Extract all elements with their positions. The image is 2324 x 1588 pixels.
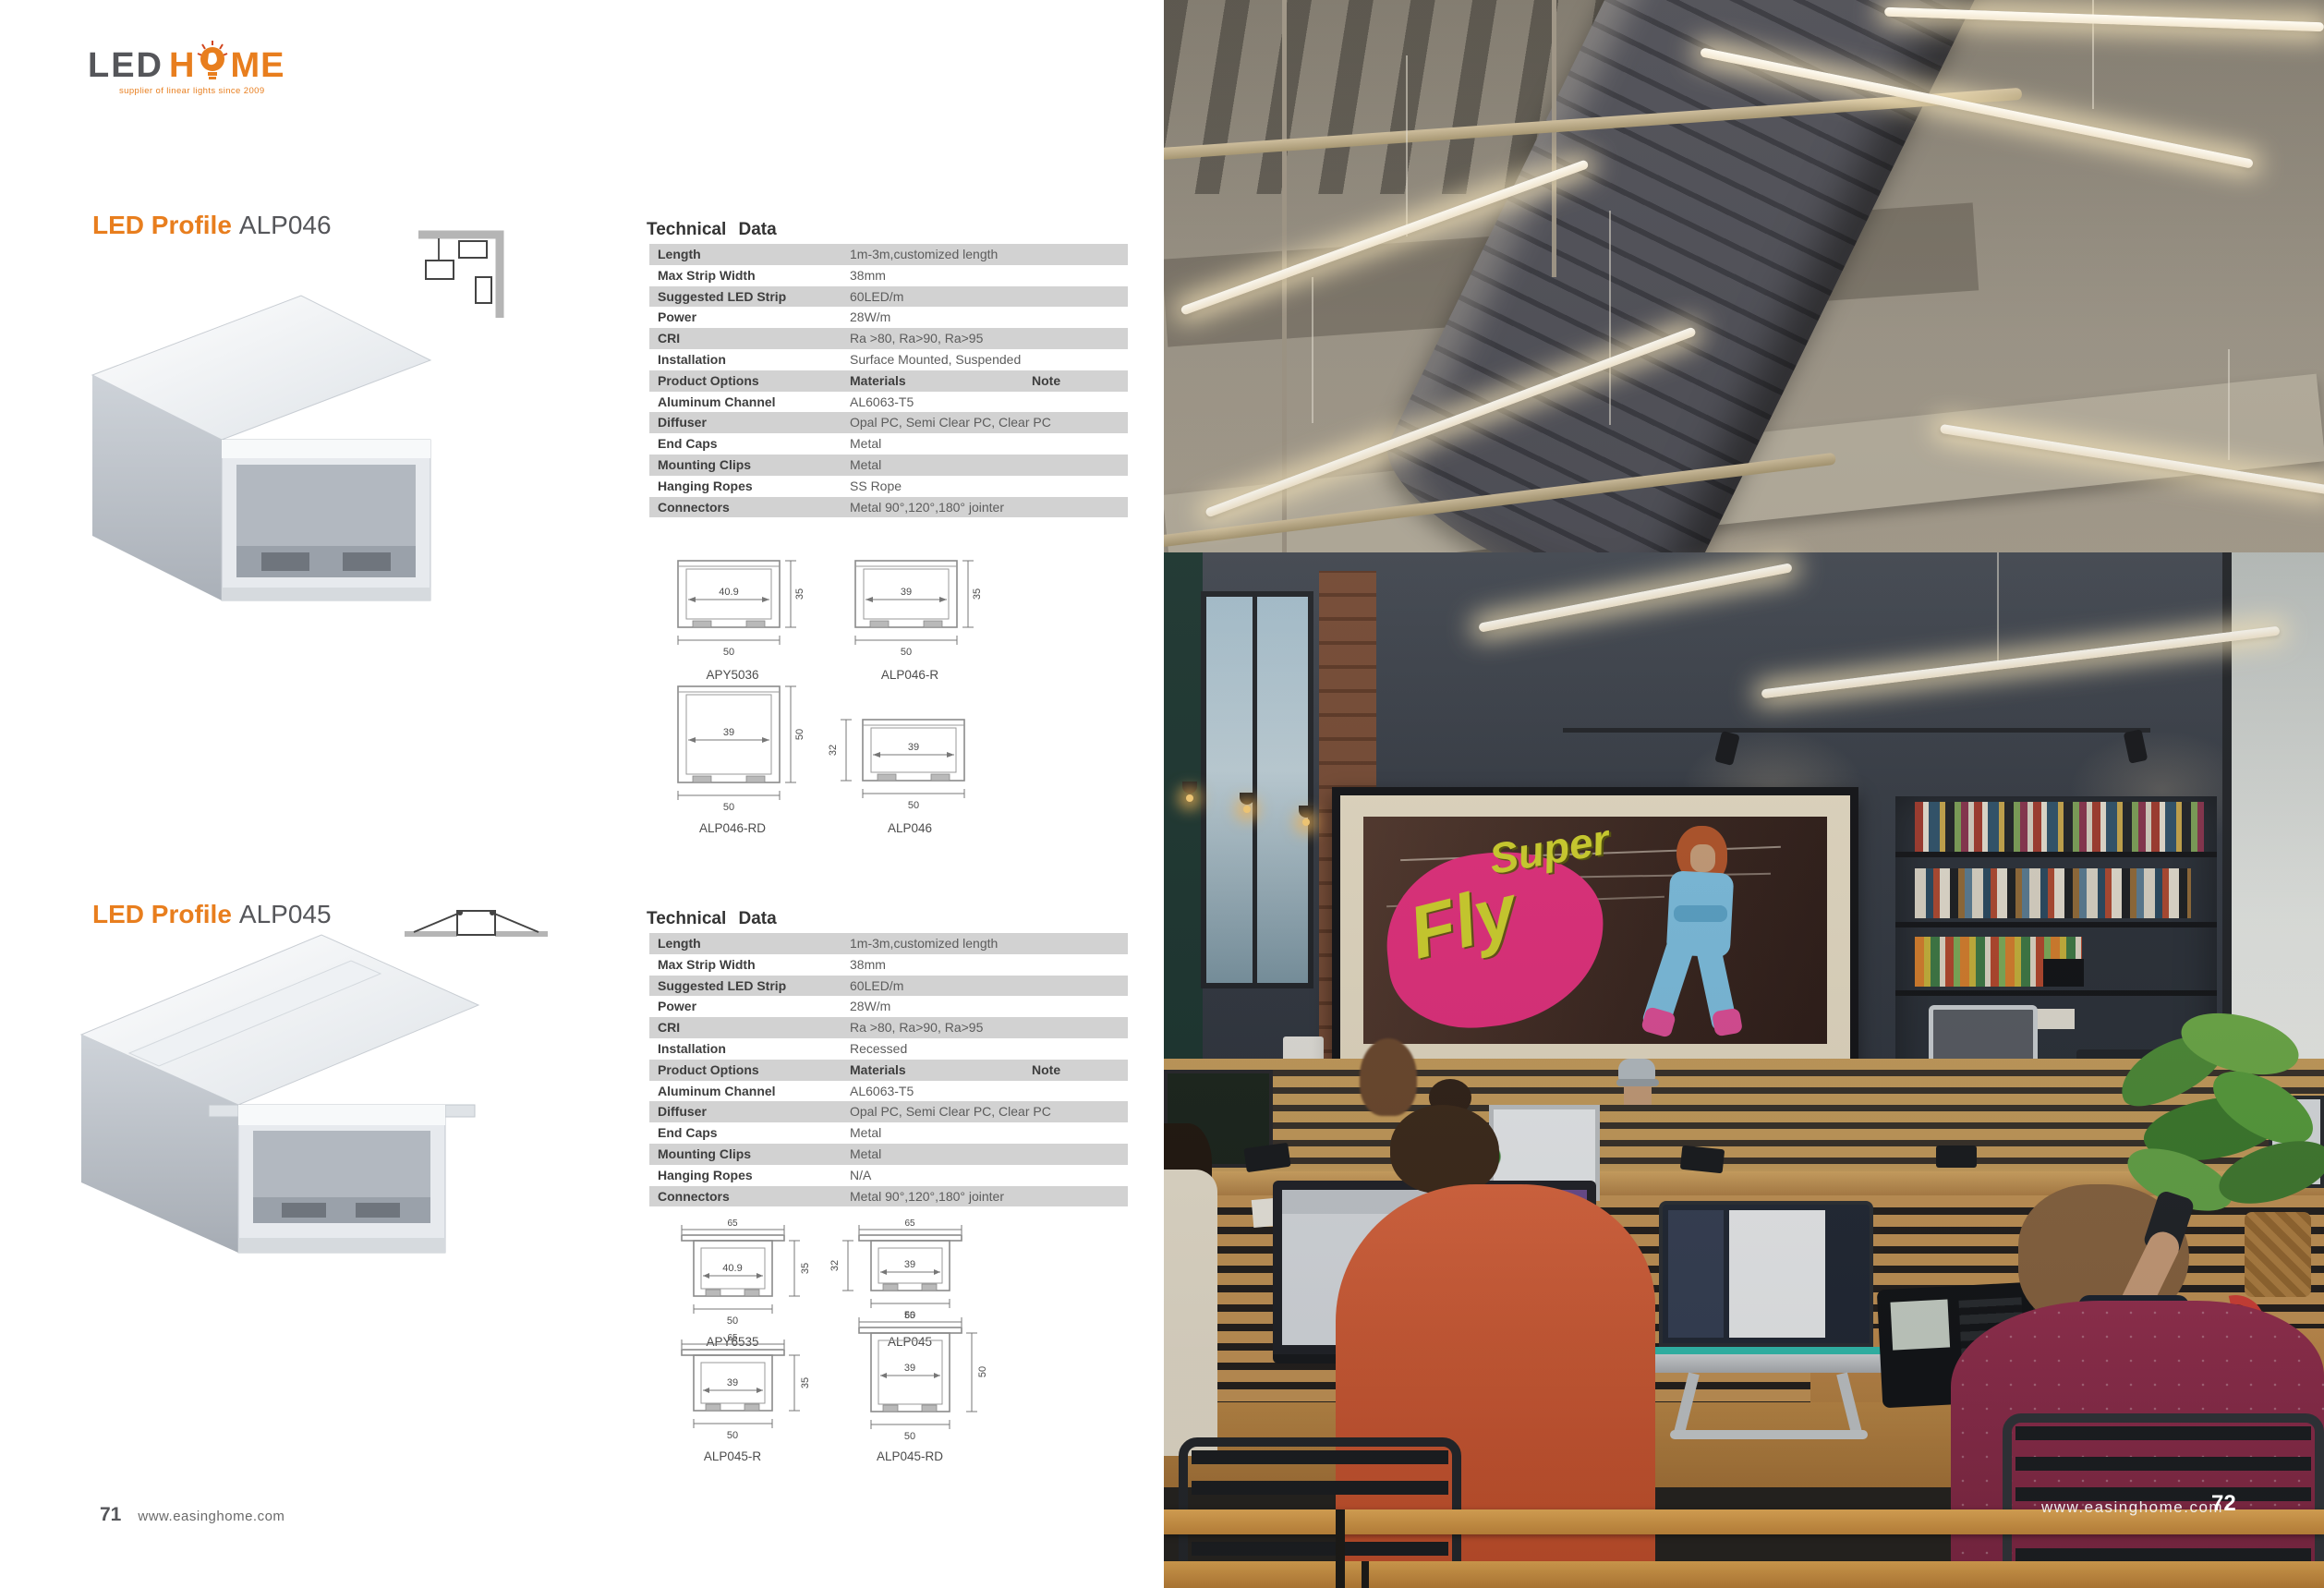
- window-mullion: [1253, 591, 1257, 988]
- row-value: Opal PC, Semi Clear PC, Clear PC: [850, 412, 1128, 433]
- dim-height: 35: [800, 1263, 811, 1274]
- laptop-keyboard-deck: [1640, 1354, 1894, 1373]
- table-row: Aluminum ChannelAL6063-T5: [649, 1081, 1128, 1102]
- shelf-board: [1895, 852, 2217, 857]
- row-value: AL6063-T5: [850, 392, 1128, 413]
- slat-rail-gap: [1362, 1561, 1369, 1588]
- row-label: Hanging Ropes: [649, 1165, 850, 1186]
- row-value: AL6063-T5: [850, 1081, 1128, 1102]
- row-label: Installation: [649, 1038, 850, 1060]
- row-value: Metal: [850, 455, 1128, 476]
- dim-inner-width: 39: [723, 727, 734, 738]
- logo-text-led: LED: [88, 48, 163, 83]
- row-label: Max Strip Width: [649, 265, 850, 286]
- dim-inner-width: 39: [904, 1363, 915, 1374]
- dim-inner-width: 39: [901, 587, 912, 598]
- row-label: Hanging Ropes: [649, 476, 850, 497]
- logo-text-h: H: [169, 48, 195, 83]
- track-light-rail: [1563, 728, 2150, 733]
- row-label: Mounting Clips: [649, 1144, 850, 1165]
- logo-tagline: supplier of linear lights since 2009: [119, 86, 328, 96]
- row-value: Metal 90°,120°,180° jointer: [850, 497, 1128, 518]
- product-render-alp046: [81, 275, 437, 612]
- catalog-spread: LED H ME supplier of linear lights since…: [0, 0, 2324, 1588]
- table-row: Suggested LED Strip60LED/m: [649, 976, 1128, 997]
- table-row: Power28W/m: [649, 996, 1128, 1017]
- table-row: ConnectorsMetal 90°,120°,180° jointer: [649, 497, 1128, 518]
- desk-phone-small: [1680, 1146, 1725, 1174]
- dim-height: 35: [972, 588, 983, 600]
- shelf-board: [1895, 922, 2217, 927]
- dim-inner-width: 40.9: [719, 587, 738, 598]
- suspension-wire: [2228, 349, 2230, 460]
- profile-drawing-alp045-rd: 65 39 50 50 ALP045-RD: [822, 1304, 998, 1463]
- table-row: End CapsMetal: [649, 1122, 1128, 1144]
- laptop-screen-sidebar: [1668, 1210, 1724, 1338]
- row-label: Diffuser: [649, 1101, 850, 1122]
- plant-basket-pot: [2245, 1212, 2311, 1297]
- table-row: DiffuserOpal PC, Semi Clear PC, Clear PC: [649, 1101, 1128, 1122]
- table-row: InstallationSurface Mounted, Suspended: [649, 349, 1128, 370]
- row-value: Materials: [850, 1060, 1032, 1081]
- row-note: Note: [1032, 1060, 1128, 1081]
- left-edge-person-sweater: [1164, 1170, 1217, 1456]
- row-value: 38mm: [850, 954, 1128, 976]
- dim-bottom-width: 50: [901, 647, 912, 658]
- dim-bottom-width: 50: [723, 647, 734, 658]
- row-label: Aluminum Channel: [649, 392, 850, 413]
- row-label: Max Strip Width: [649, 954, 850, 976]
- tech-table-alp045: Length1m-3m,customized length Max Strip …: [649, 933, 1128, 1206]
- suspension-wire: [1997, 552, 1999, 663]
- table-row: Max Strip Width38mm: [649, 954, 1128, 976]
- pendant-lamp-glow: [1186, 794, 1193, 802]
- figure-boot: [1711, 1008, 1742, 1037]
- table-row: Max Strip Width38mm: [649, 265, 1128, 286]
- laptop-screen: [1659, 1201, 1873, 1347]
- page-number: 71: [100, 1504, 121, 1526]
- pendant-lamp-glow: [1243, 806, 1251, 813]
- tech-table-alp046: Length1m-3m,customized length Max Strip …: [649, 244, 1128, 517]
- row-value: Metal: [850, 1144, 1128, 1165]
- row-value: SS Rope: [850, 476, 1128, 497]
- row-value: Metal: [850, 433, 1128, 455]
- foreground-woman-hair: [1390, 1105, 1499, 1194]
- dim-inner-width: 39: [908, 742, 919, 753]
- cap-person-face: [1624, 1086, 1652, 1105]
- row-label: Product Options: [649, 1060, 850, 1081]
- page-number: 72: [2211, 1491, 2236, 1517]
- conduit-pipe: [1552, 0, 1556, 277]
- table-row: CRIRa >80, Ra>90, Ra>95: [649, 328, 1128, 349]
- drawing-label: ALP045-R: [704, 1449, 761, 1463]
- row-note: Note: [1032, 370, 1128, 392]
- row-value: 1m-3m,customized length: [850, 933, 1128, 954]
- row-label: Suggested LED Strip: [649, 286, 850, 308]
- row-value: 28W/m: [850, 307, 1128, 328]
- figure-folded-arms: [1674, 905, 1726, 922]
- conduit-pipe: [1282, 0, 1287, 591]
- row-value: 28W/m: [850, 996, 1128, 1017]
- section-title-model: ALP046: [239, 211, 332, 239]
- table-subheader-row: Product OptionsMaterialsNote: [649, 1060, 1128, 1081]
- baseball-cap-person: [1618, 1059, 1655, 1081]
- background-person-head: [1360, 1038, 1417, 1116]
- product-render-alp045: [74, 916, 485, 1304]
- dim-height: 32: [829, 1260, 841, 1271]
- row-label: End Caps: [649, 433, 850, 455]
- row-label: Diffuser: [649, 412, 850, 433]
- dim-height: 50: [794, 729, 805, 740]
- books-row: [1915, 868, 2191, 918]
- profile-drawing-alp046: 39 32 50 ALP046: [822, 671, 998, 835]
- dim-height: 32: [828, 745, 839, 756]
- shelf-object: [2043, 959, 2084, 987]
- table-row: Aluminum ChannelAL6063-T5: [649, 392, 1128, 413]
- brand-logo: LED H ME supplier of linear lights since…: [88, 41, 328, 124]
- section-title-highlight: LED Profile: [92, 211, 232, 239]
- row-label: Connectors: [649, 497, 850, 518]
- row-label: Length: [649, 244, 850, 265]
- row-label: Power: [649, 996, 850, 1017]
- row-label: End Caps: [649, 1122, 850, 1144]
- row-value: Metal: [850, 1122, 1128, 1144]
- row-value: 38mm: [850, 265, 1128, 286]
- row-label: CRI: [649, 1017, 850, 1038]
- row-value: Surface Mounted, Suspended: [850, 349, 1128, 370]
- profile-drawing-apy5036: 40.9 35 50 APY5036: [645, 527, 820, 682]
- laptop-case-rim: [1646, 1347, 1888, 1354]
- drawing-label: ALP046-RD: [699, 821, 766, 835]
- profile-drawing-alp046-rd: 39 50 50 ALP046-RD: [645, 671, 820, 835]
- figure-face: [1690, 844, 1715, 871]
- window: [1201, 591, 1313, 988]
- dim-inner-width: 40.9: [722, 1263, 742, 1274]
- suspension-wire: [1609, 211, 1611, 425]
- dim-height: 35: [794, 588, 805, 600]
- dim-bottom-width: 50: [723, 802, 734, 813]
- office-photo: Super Fly: [1164, 0, 2324, 1588]
- books-row: [1915, 802, 2204, 852]
- phone-display: [1890, 1299, 1950, 1350]
- dim-bottom-width: 50: [904, 1431, 915, 1442]
- poster-figure: [1632, 826, 1772, 1035]
- left-page-footer: 71 www.easinghome.com: [100, 1504, 284, 1526]
- website-url: www.easinghome.com: [2041, 1498, 2223, 1517]
- row-value: Materials: [850, 370, 1032, 392]
- desk-phone-small: [1936, 1146, 1977, 1168]
- tech-data-heading-2: Technical Data: [647, 909, 777, 929]
- table-row: Power28W/m: [649, 307, 1128, 328]
- dim-inner-width: 39: [904, 1259, 915, 1270]
- row-value: Opal PC, Semi Clear PC, Clear PC: [850, 1101, 1128, 1122]
- superfly-poster-frame: Super Fly: [1332, 787, 1858, 1072]
- curtain: [1164, 552, 1203, 1107]
- table-row: Mounting ClipsMetal: [649, 455, 1128, 476]
- row-label: Aluminum Channel: [649, 1081, 850, 1102]
- lightbulb-icon: [197, 41, 228, 83]
- profile-drawing-alp045-r: 65 39 35 50 ALP045-R: [645, 1304, 820, 1463]
- dim-height: 50: [977, 1366, 988, 1377]
- dim-top-width: 65: [727, 1218, 738, 1229]
- dim-bottom-width: 50: [727, 1430, 738, 1441]
- shelf-board: [1895, 990, 2217, 996]
- table-row: Suggested LED Strip60LED/m: [649, 286, 1128, 308]
- poster-art: Super Fly: [1363, 817, 1827, 1044]
- table-row: Mounting ClipsMetal: [649, 1144, 1128, 1165]
- tech-data-heading-1: Technical Data: [647, 220, 777, 240]
- row-value: 60LED/m: [850, 976, 1128, 997]
- row-label: Suggested LED Strip: [649, 976, 850, 997]
- row-label: Installation: [649, 349, 850, 370]
- dim-top-width: 65: [727, 1333, 738, 1343]
- table-row: Hanging RopesN/A: [649, 1165, 1128, 1186]
- section-title-alp046: LED ProfileALP046: [92, 212, 332, 238]
- row-value: Recessed: [850, 1038, 1128, 1060]
- row-value: N/A: [850, 1165, 1128, 1186]
- row-label: Mounting Clips: [649, 455, 850, 476]
- dim-top-width: 65: [904, 1311, 915, 1321]
- row-value: Ra >80, Ra>90, Ra>95: [850, 328, 1128, 349]
- table-row: End CapsMetal: [649, 433, 1128, 455]
- suspension-wire: [1406, 55, 1408, 236]
- slat-rail-gap: [1336, 1509, 1345, 1588]
- website-url: www.easinghome.com: [138, 1509, 284, 1524]
- suspension-wire: [1312, 277, 1313, 423]
- pendant-lamp-glow: [1302, 818, 1310, 826]
- table-row: Length1m-3m,customized length: [649, 933, 1128, 954]
- table-row: Length1m-3m,customized length: [649, 244, 1128, 265]
- table-row: CRIRa >80, Ra>90, Ra>95: [649, 1017, 1128, 1038]
- drawing-label: ALP045-RD: [877, 1449, 943, 1463]
- row-value: 60LED/m: [850, 286, 1128, 308]
- profile-drawing-alp046-r: 39 35 50 ALP046-R: [822, 527, 998, 682]
- row-label: Power: [649, 307, 850, 328]
- row-label: Length: [649, 933, 850, 954]
- table-subheader-row: Product OptionsMaterialsNote: [649, 370, 1128, 392]
- table-row: InstallationRecessed: [649, 1038, 1128, 1060]
- row-label: Product Options: [649, 370, 850, 392]
- dim-top-width: 65: [904, 1218, 915, 1229]
- dim-bottom-width: 50: [908, 800, 919, 811]
- table-row: DiffuserOpal PC, Semi Clear PC, Clear PC: [649, 412, 1128, 433]
- dim-inner-width: 39: [727, 1377, 738, 1388]
- cap-brim: [1616, 1079, 1659, 1086]
- logo-text-me: ME: [230, 48, 284, 83]
- row-value: Ra >80, Ra>90, Ra>95: [850, 1017, 1128, 1038]
- dim-height: 35: [800, 1377, 811, 1388]
- laptop-screen-content: [1729, 1210, 1825, 1338]
- row-value: 1m-3m,customized length: [850, 244, 1128, 265]
- laptop-stand-base: [1670, 1430, 1868, 1439]
- table-row: Hanging RopesSS Rope: [649, 476, 1128, 497]
- drawing-label: ALP046: [888, 821, 932, 835]
- row-label: CRI: [649, 328, 850, 349]
